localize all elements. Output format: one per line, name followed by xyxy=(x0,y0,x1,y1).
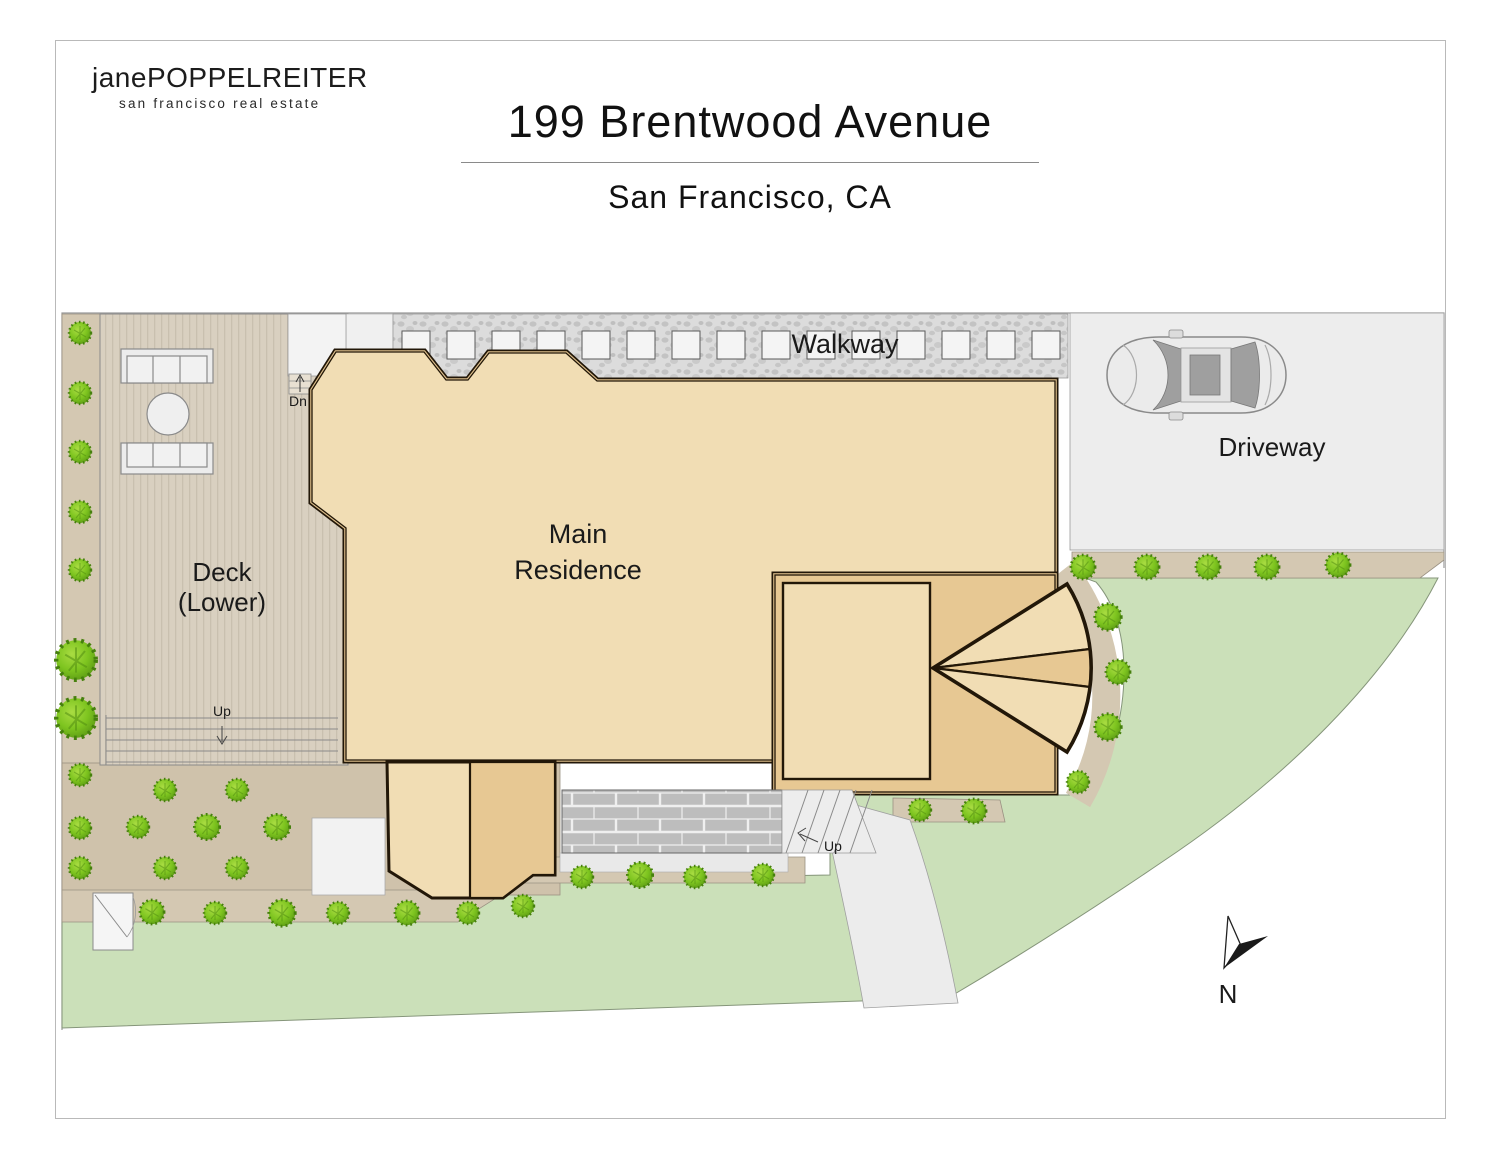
bush-icon xyxy=(1196,555,1220,579)
bush-icon xyxy=(1106,660,1130,684)
walkway-paver xyxy=(897,331,925,359)
car xyxy=(1107,330,1286,420)
bush-icon xyxy=(909,799,931,821)
bush-icon xyxy=(194,814,219,839)
bush-icon xyxy=(56,640,96,680)
north-arrow-icon xyxy=(1224,916,1268,968)
bush-icon xyxy=(1071,555,1095,579)
bush-icon xyxy=(69,559,91,581)
walkway-paver xyxy=(1032,331,1060,359)
entry-stairs-up-label: Up xyxy=(824,838,842,854)
walkway-paver xyxy=(987,331,1015,359)
landing-dn-label: Dn xyxy=(289,393,307,409)
bush-icon xyxy=(69,322,91,344)
main-residence-label-line2: Residence xyxy=(514,555,642,585)
bush-icon xyxy=(457,902,479,924)
car-mirror-top xyxy=(1169,330,1183,338)
bush-icon xyxy=(69,764,91,786)
bush-icon xyxy=(1095,604,1121,630)
site-plan: Main Residence Deck (Lower) Walkway Driv… xyxy=(0,0,1500,1159)
bush-icon xyxy=(264,814,289,839)
walkway-paver xyxy=(627,331,655,359)
bush-icon xyxy=(571,866,593,888)
bush-icon xyxy=(204,902,226,924)
bush-icon xyxy=(140,900,164,924)
walkway-paver xyxy=(447,331,475,359)
deck-sofa-top xyxy=(121,349,213,383)
walkway-label: Walkway xyxy=(791,329,899,359)
bush-icon xyxy=(627,862,652,887)
brick-patio xyxy=(562,790,782,853)
bush-icon xyxy=(226,779,248,801)
deck-sofa-bottom xyxy=(121,443,213,474)
walkway-paver xyxy=(717,331,745,359)
bush-icon xyxy=(1255,555,1279,579)
bush-icon xyxy=(395,901,419,925)
deck-label-line2: (Lower) xyxy=(178,587,266,617)
bush-icon xyxy=(1067,771,1089,793)
bush-icon xyxy=(1326,553,1350,577)
bush-icon xyxy=(56,698,96,738)
lower-bay xyxy=(387,762,555,898)
bush-icon xyxy=(327,902,349,924)
walkway-paver xyxy=(582,331,610,359)
deck-label-line1: Deck xyxy=(192,557,252,587)
bush-icon xyxy=(226,857,248,879)
driveway-label: Driveway xyxy=(1219,432,1326,462)
bush-icon xyxy=(1135,555,1159,579)
car-rear-window xyxy=(1231,342,1260,408)
deck-round-table xyxy=(147,393,189,435)
page: janePOPPELREITER san francisco real esta… xyxy=(0,0,1500,1159)
walkway-paver xyxy=(672,331,700,359)
bush-icon xyxy=(154,779,176,801)
main-residence-label-line1: Main xyxy=(549,519,608,549)
bush-icon xyxy=(69,382,91,404)
walkway-paver xyxy=(762,331,790,359)
bush-icon xyxy=(752,864,774,886)
bush-icon xyxy=(512,895,534,917)
walkway-paver xyxy=(942,331,970,359)
wing-inner-room xyxy=(783,583,930,779)
bush-icon xyxy=(127,816,149,838)
bush-icon xyxy=(69,817,91,839)
bush-icon xyxy=(1095,714,1121,740)
paved-nook xyxy=(312,818,385,895)
bush-icon xyxy=(69,441,91,463)
bush-icon xyxy=(154,857,176,879)
deck-stairs-up-label: Up xyxy=(213,703,231,719)
bush-icon xyxy=(69,501,91,523)
car-sunroof xyxy=(1190,355,1220,395)
walkway-strip xyxy=(346,314,1068,378)
bush-icon xyxy=(269,900,295,926)
car-mirror-bottom xyxy=(1169,412,1183,420)
bush-icon xyxy=(962,799,986,823)
garden-gate xyxy=(93,893,136,950)
bush-icon xyxy=(684,866,706,888)
bush-icon xyxy=(69,857,91,879)
north-label: N xyxy=(1219,979,1238,1009)
